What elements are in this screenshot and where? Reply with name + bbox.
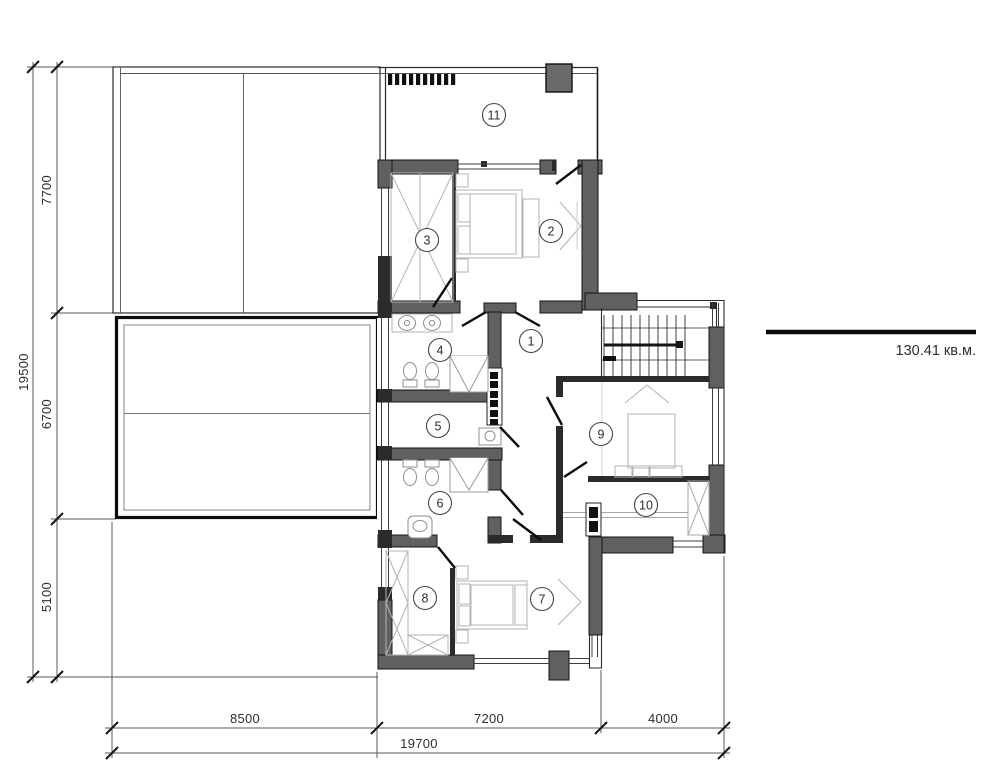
dim-label-7700: 7700 — [39, 175, 54, 205]
stairs — [602, 315, 709, 376]
room-label-3: 3 — [416, 229, 439, 252]
room-number: 7 — [539, 593, 546, 607]
door-room6 — [501, 490, 523, 515]
room-number: 5 — [435, 420, 442, 434]
dim-label-bottom-total: 19700 — [400, 736, 438, 751]
door-terrace — [556, 165, 581, 184]
stair-entry-mark — [603, 356, 616, 361]
room-label-5: 5 — [427, 415, 450, 438]
annex-roof-outline — [113, 67, 597, 313]
room-label-2: 2 — [540, 220, 563, 243]
bed-room7-icon — [456, 566, 581, 643]
room-label-7: 7 — [531, 588, 554, 611]
thin-outlines — [590, 301, 725, 669]
floor-plan-page: 19500 7700 6700 5100 8500 7200 4000 1970… — [0, 0, 1000, 766]
shower-room4-icon — [450, 356, 488, 392]
room-label-4: 4 — [429, 339, 452, 362]
bed-room2-icon — [456, 174, 581, 272]
door-room8 — [438, 547, 455, 568]
dim-label-8500: 8500 — [230, 711, 260, 726]
room-number: 3 — [424, 234, 431, 248]
door-room9 — [547, 397, 562, 425]
sink-counter-room4-icon — [392, 314, 452, 332]
room-number: 4 — [437, 344, 444, 358]
dim-label-7200: 7200 — [474, 711, 504, 726]
room-label-1: 1 — [520, 330, 543, 353]
cabinet-room10-icon — [586, 503, 601, 536]
door-hall-left — [462, 312, 486, 326]
room-label-10: 10 — [635, 494, 658, 517]
toilet-room6-icon — [403, 460, 439, 486]
plumbing-duct-icon — [487, 368, 502, 425]
sink-room6-icon — [408, 516, 432, 538]
area-annotation-text: 130.41 кв.м. — [896, 343, 976, 359]
dim-label-6700: 6700 — [39, 399, 54, 429]
room-label-8: 8 — [414, 587, 437, 610]
dim-label-5100: 5100 — [39, 582, 54, 612]
chimney-top-icon — [546, 64, 572, 92]
washer-room5-icon — [479, 428, 501, 445]
dim-label-left-total: 19500 — [16, 353, 31, 391]
dim-label-4000: 4000 — [648, 711, 678, 726]
pool-outer-edge — [117, 318, 378, 518]
floor-plan-canvas: 19500 7700 6700 5100 8500 7200 4000 1970… — [0, 0, 1000, 766]
toilet-room4-icon — [403, 363, 439, 388]
chimney-bottom-icon — [549, 651, 569, 680]
room-number: 6 — [437, 497, 444, 511]
area-annotation: 130.41 кв.м. — [766, 332, 976, 359]
room-label-6: 6 — [429, 492, 452, 515]
door-hall-right — [515, 312, 540, 326]
door-room7 — [513, 519, 541, 540]
pool — [117, 318, 378, 518]
shower-room6-icon — [450, 458, 488, 492]
door-room10 — [564, 462, 587, 477]
pergola-grill-icon — [388, 74, 455, 85]
room-number: 1 — [528, 335, 535, 349]
room-number: 10 — [639, 499, 653, 513]
room-number: 9 — [598, 428, 605, 442]
room-label-9: 9 — [590, 423, 613, 446]
room-number: 11 — [488, 109, 501, 123]
room-number: 2 — [548, 225, 555, 239]
door-room5 — [500, 427, 519, 447]
bed-room9-icon — [602, 382, 682, 477]
mirror-room2-icon — [560, 202, 581, 250]
room-number: 8 — [422, 592, 429, 606]
room-label-11: 11 — [483, 104, 506, 127]
mirror-room7-icon — [558, 579, 581, 625]
